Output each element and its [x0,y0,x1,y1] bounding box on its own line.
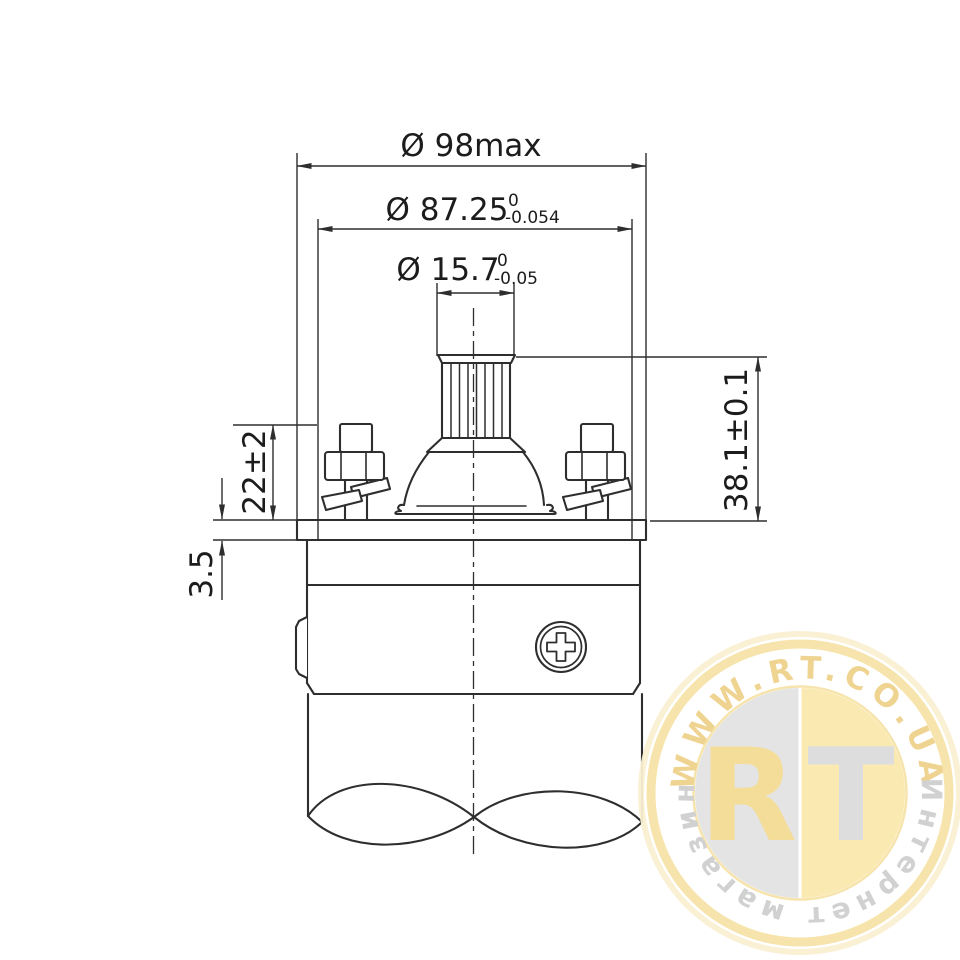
component-outline [296,355,646,848]
watermark-monogram-t: T [807,722,894,871]
mounting-plate [297,520,646,540]
dim-label-height-22: 22±2 [237,429,273,514]
terminal-right-lug-lower [563,490,603,510]
dome-left-curve [404,452,429,505]
drawing-canvas: Ø 98max Ø 87.25 0 -0.054 Ø 15.7 0 -0.05 … [0,0,960,960]
terminal-right-head [581,424,613,452]
dome [395,452,555,514]
dim-label-diameter-98: Ø 98max [400,128,541,164]
dim-tolerance-15-lower: -0.05 [494,269,538,289]
knurl-splines [451,364,502,437]
terminal-left-nut [325,452,384,480]
dim-label-thickness-35: 3.5 [184,549,220,598]
tube-sides [308,694,642,822]
terminal-right [563,424,631,520]
dim-tolerance-15-upper: 0 [497,251,508,271]
dome-right-curve [523,452,544,505]
terminal-left-lug-lower [322,490,362,510]
body-side-lug [296,617,307,678]
screw-outer-ring [536,622,586,672]
housing-body [296,540,640,694]
technical-drawing-page: Ø 98max Ø 87.25 0 -0.054 Ø 15.7 0 -0.05 … [0,0,960,960]
dim-label-diameter-15: Ø 15.7 [396,252,499,288]
shaft-cap [438,355,515,363]
terminal-right-nut [566,452,625,480]
lower-tube [308,694,642,848]
dim-label-diameter-87: Ø 87.25 [385,192,508,228]
dim-label-height-38: 38.1±0.1 [719,368,755,512]
watermark-logo: R T WWW.RT.CO.UA Интернет магазин [641,634,959,952]
terminal-left [322,424,390,520]
shaft-flare [427,438,525,452]
dim-tolerance-87-lower: -0.054 [505,208,560,228]
knurled-shaft [427,355,525,452]
phillips-screw [536,622,586,672]
terminal-left-head [340,424,372,452]
